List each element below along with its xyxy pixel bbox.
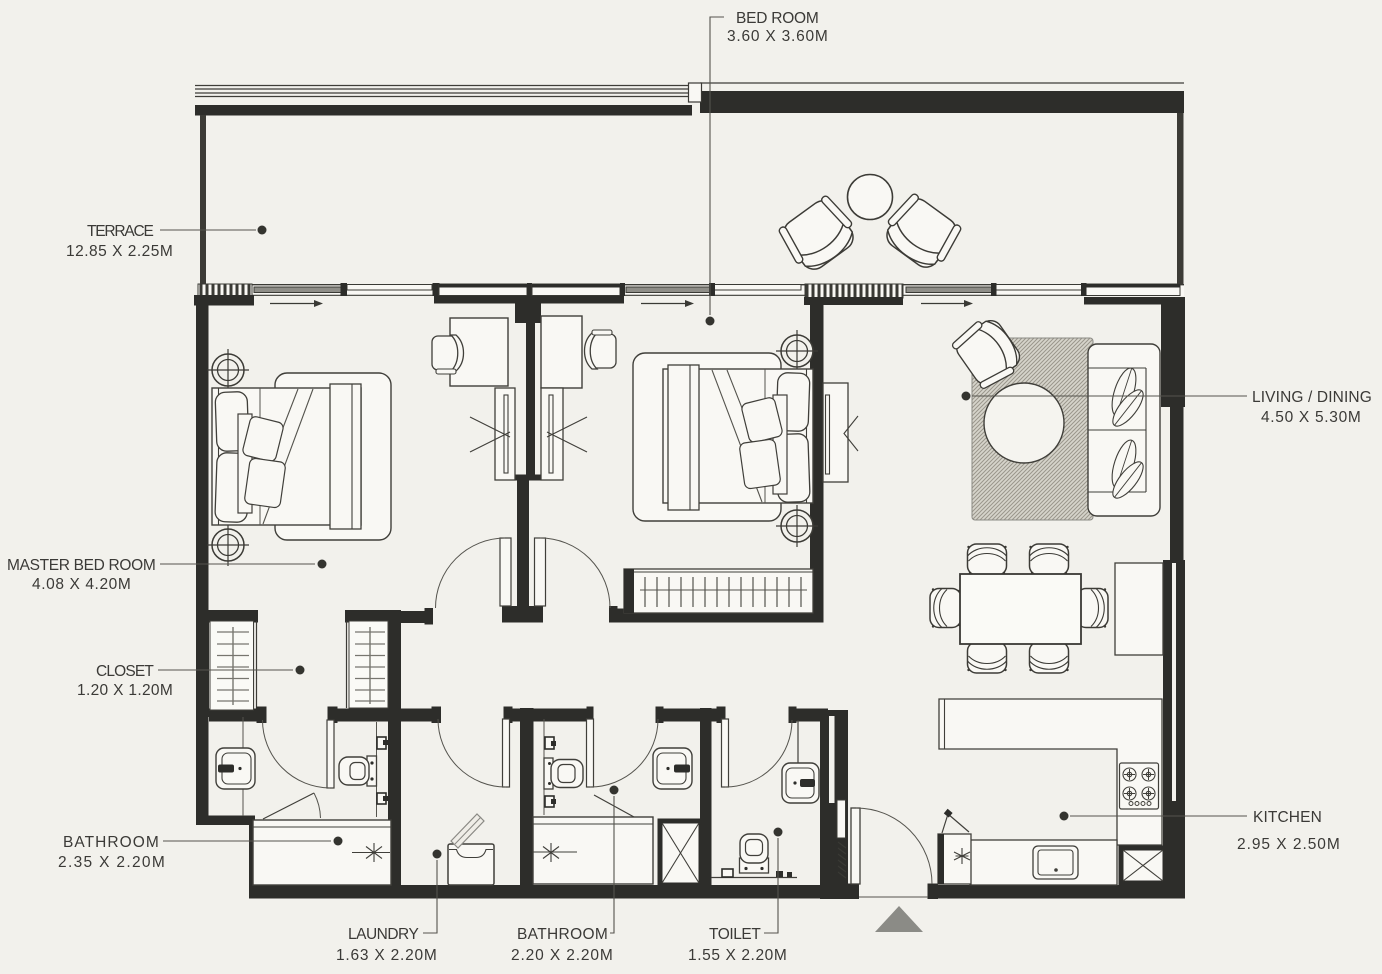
svg-text:LAUNDRY: LAUNDRY [348,926,420,943]
svg-text:BATHROOM: BATHROOM [517,926,609,943]
svg-text:2.35 X 2.20M: 2.35 X 2.20M [58,854,166,871]
svg-text:KITCHEN: KITCHEN [1253,809,1323,826]
svg-text:4.50 X 5.30M: 4.50 X 5.30M [1261,409,1362,426]
svg-text:MASTER BED ROOM: MASTER BED ROOM [7,557,157,574]
svg-text:12.85 X 2.25M: 12.85 X 2.25M [66,243,174,260]
svg-text:BATHROOM: BATHROOM [63,834,160,851]
svg-text:LIVING / DINING: LIVING / DINING [1252,389,1373,406]
svg-text:1.20 X 1.20M: 1.20 X 1.20M [77,682,174,699]
svg-text:1.55 X 2.20M: 1.55 X 2.20M [688,947,788,964]
svg-text:1.63 X 2.20M: 1.63 X 2.20M [336,947,438,964]
svg-text:2.95 X 2.50M: 2.95 X 2.50M [1237,836,1341,853]
svg-text:BED ROOM: BED ROOM [736,10,820,27]
svg-text:4.08 X 4.20M: 4.08 X 4.20M [32,576,132,593]
svg-text:TERRACE: TERRACE [87,223,155,240]
svg-text:3.60 X 3.60M: 3.60 X 3.60M [727,28,829,45]
svg-text:2.20 X 2.20M: 2.20 X 2.20M [511,947,614,964]
svg-text:CLOSET: CLOSET [96,663,155,680]
svg-text:TOILET: TOILET [709,926,762,943]
